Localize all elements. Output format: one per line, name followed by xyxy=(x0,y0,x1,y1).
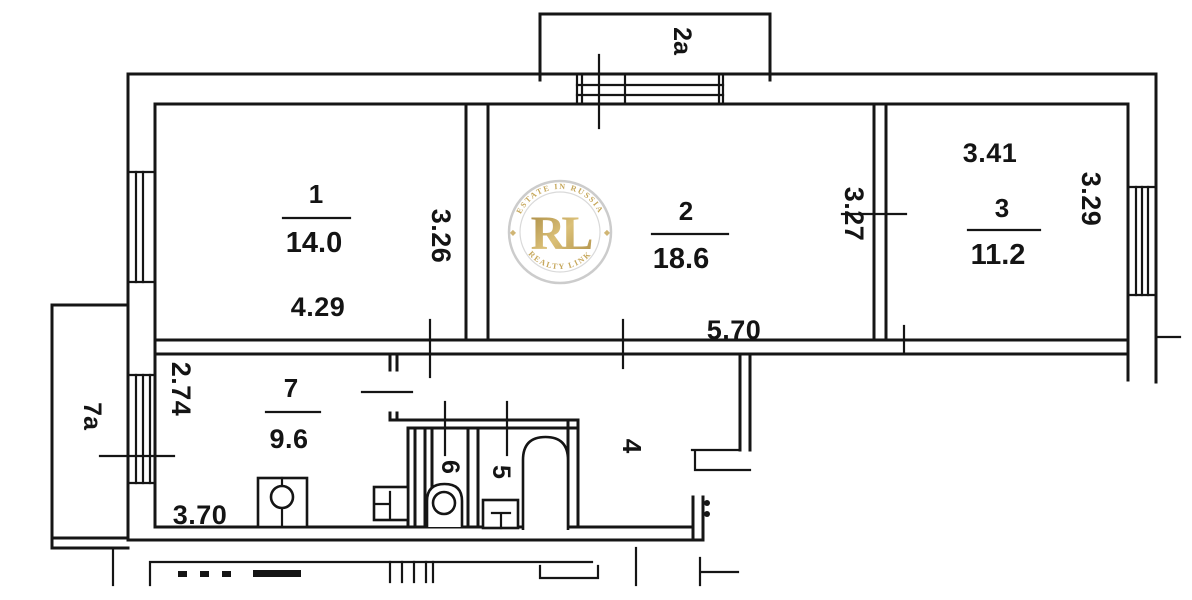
room1-number-label: 1 xyxy=(309,179,323,209)
room5-number-label: 5 xyxy=(487,465,515,479)
room4-number-label: 4 xyxy=(617,439,647,454)
balcony-7a-outline xyxy=(52,305,128,585)
watermark-diamond-right: ◆ xyxy=(604,228,611,237)
room6-number-label: 6 xyxy=(436,460,464,474)
dim-room2-depth: 3.27 xyxy=(839,187,869,242)
room1-area-label: 14.0 xyxy=(286,227,342,259)
window-room3-right xyxy=(1128,187,1156,295)
floor-plan-page: 1 14.0 2 18.6 3 11.2 7 9.6 4 5 6 2a 7a 4… xyxy=(0,0,1192,600)
stairwell-lines xyxy=(150,558,738,585)
stove-symbol xyxy=(258,478,307,527)
kitchen-sink-symbol xyxy=(374,487,408,520)
room7-area-label: 9.6 xyxy=(269,424,308,454)
dim-room3-depth: 3.29 xyxy=(1076,172,1106,227)
bathtub-symbol xyxy=(523,437,568,530)
balcony-2a-label: 2a xyxy=(668,27,696,56)
watermark-logo: ESTATE IN RUSSIA REALTY LINK ◆ ◆ RL xyxy=(509,181,611,283)
dim-room7-depth: 2.74 xyxy=(166,362,196,417)
entrance-door-marks xyxy=(704,500,710,517)
watermark-diamond-left: ◆ xyxy=(510,228,517,237)
interior-walls xyxy=(155,104,1128,540)
window-room1-left xyxy=(128,172,155,282)
balcony-2a-outline xyxy=(540,14,770,80)
watermark-initials: RL xyxy=(531,207,592,260)
window-kitchen-left xyxy=(128,375,155,483)
room2-area-label: 18.6 xyxy=(653,243,709,275)
washbasin-symbol xyxy=(483,500,518,528)
dim-room1-depth: 3.26 xyxy=(426,209,456,264)
room7-number-label: 7 xyxy=(284,373,298,403)
floor-plan-drawing: 1 14.0 2 18.6 3 11.2 7 9.6 4 5 6 2a 7a 4… xyxy=(0,0,1192,600)
dim-room1-width: 4.29 xyxy=(291,292,346,322)
toilet-symbol xyxy=(427,484,462,527)
room3-number-label: 3 xyxy=(995,193,1009,223)
room2-number-label: 2 xyxy=(679,196,693,226)
dim-room3-width: 3.41 xyxy=(963,138,1018,168)
room3-area-label: 11.2 xyxy=(971,239,1026,271)
balcony-7a-label: 7a xyxy=(78,402,106,431)
dim-room2-width: 5.70 xyxy=(707,315,762,345)
dim-room7-width: 3.70 xyxy=(173,500,228,530)
